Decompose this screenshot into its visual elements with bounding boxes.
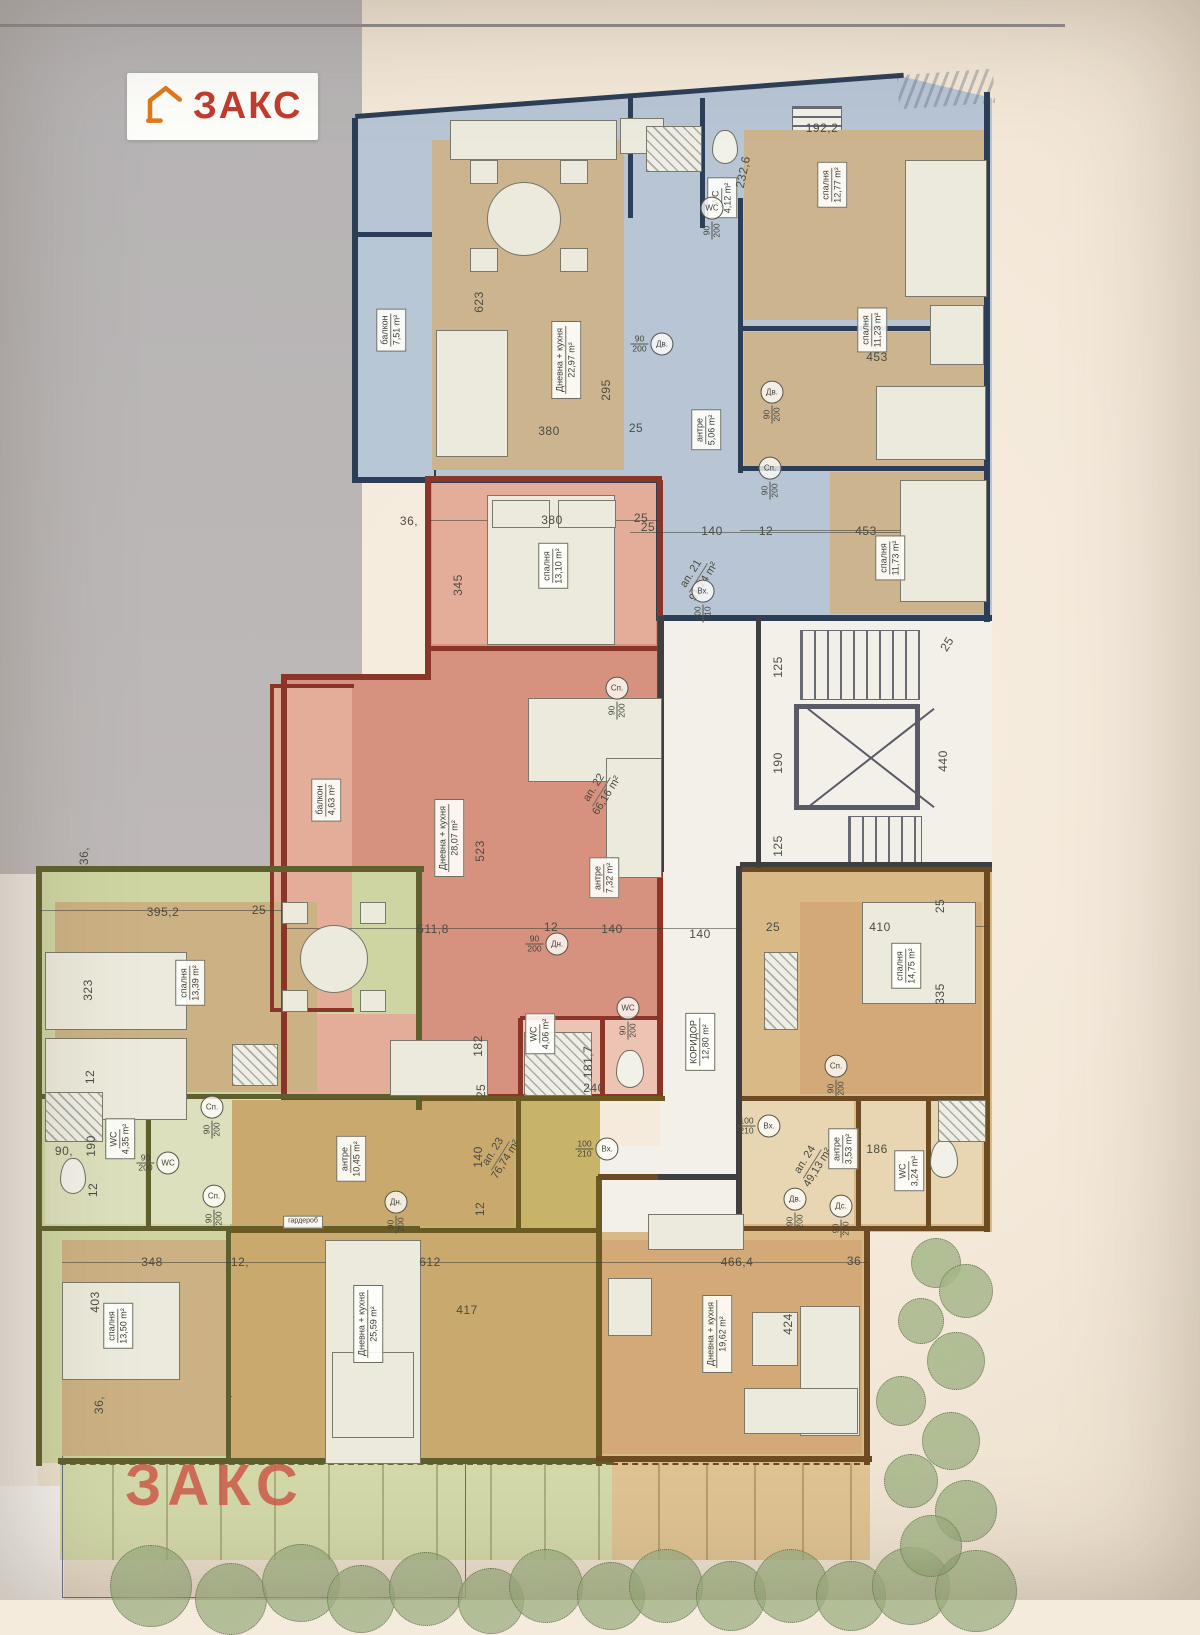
furniture-icon: [470, 160, 498, 184]
room-name: WC: [528, 1025, 540, 1044]
wall: [596, 1176, 602, 1466]
door-size: 100210: [575, 1139, 593, 1159]
room-area: 7,51 m²: [392, 315, 403, 346]
dimension-label: 12: [759, 524, 773, 538]
toilet-icon: [930, 1140, 958, 1178]
tree-icon: [195, 1563, 267, 1635]
room-label: Дневна + кухня22,97 m²: [551, 321, 581, 399]
dimension-label: 12: [473, 1202, 487, 1216]
table-icon: [300, 925, 368, 993]
table-icon: [487, 182, 561, 256]
dimension-label: 453: [866, 350, 888, 364]
room-area: 28,07 m²: [450, 820, 461, 856]
dimension-label: 623: [472, 291, 486, 313]
dimension-label: 25: [252, 903, 266, 917]
dimension-label: 25: [629, 421, 643, 435]
wall: [281, 674, 431, 680]
room-label: спалня11,73 m²: [875, 536, 905, 581]
door-size: 90200: [762, 405, 782, 423]
dimension-label: 12: [86, 1183, 100, 1197]
paper-edge-bottom-left: [0, 1486, 64, 1600]
dimension-label: 12,: [231, 1255, 249, 1269]
floor-plan-photo: ЗАКС ЗАКС балкон7,51 m²Дневна + кухня22,…: [0, 0, 1200, 1600]
room-name: спалня: [878, 541, 890, 574]
dimension-label: 295: [599, 379, 613, 401]
dimension-label: 410: [869, 920, 891, 934]
stairs-upper: [800, 630, 920, 700]
dimension-label: 511,8: [417, 922, 449, 936]
furniture-icon: [930, 305, 984, 365]
door-size: 90200: [525, 934, 543, 954]
room-area: 11,73 m²: [891, 541, 902, 576]
wall: [270, 684, 354, 688]
door-type-badge: Сп.: [203, 1184, 226, 1207]
door-type-badge: Вх.: [758, 1115, 781, 1138]
fixture-icon: [646, 126, 702, 172]
door-tag: 90200WC: [617, 996, 640, 1039]
furniture-icon: [360, 990, 386, 1012]
tree-icon: [389, 1552, 463, 1626]
room-name: гардероб: [286, 1218, 320, 1227]
table-edge-line: [0, 24, 1065, 27]
tree-icon: [939, 1264, 993, 1318]
room-name: спалня: [541, 549, 553, 582]
door-type-badge: Вх.: [692, 579, 715, 602]
furniture-icon: [876, 386, 986, 460]
room-label: WC3,24 m²: [894, 1151, 924, 1192]
wall: [36, 866, 424, 872]
furniture-icon: [560, 160, 588, 184]
dimension-label: 380: [541, 513, 563, 527]
door-tag: 100210Вх.: [575, 1138, 618, 1161]
room-label: спалня13,50 m²: [103, 1303, 133, 1349]
door-tag: 90200Дн.: [385, 1190, 408, 1233]
dimension-label: 12: [83, 1070, 97, 1084]
room-area: 3,53 m²: [844, 1134, 855, 1165]
dimension-label: 140: [601, 922, 623, 936]
door-size: 90200: [826, 1079, 846, 1097]
door-type-badge: Вх.: [596, 1138, 619, 1161]
apartment-21-balcony-zone: [356, 235, 436, 483]
dimension-label: 36,: [77, 847, 91, 865]
house-icon: [143, 83, 185, 130]
wall: [270, 684, 274, 1012]
room-label: балкон4,63 m²: [311, 778, 341, 821]
door-type-badge: Сп.: [201, 1095, 224, 1118]
room-name: спалня: [820, 168, 832, 201]
room-area: 13,39 m²: [191, 965, 202, 1001]
dimension-label: 192,2: [806, 121, 839, 135]
room-name: спалня: [860, 313, 872, 346]
room-name: WC: [108, 1130, 120, 1149]
room-area: 11,23 m²: [873, 313, 884, 348]
room-label: гардероб: [283, 1216, 323, 1229]
zaks-logo: ЗАКС: [127, 73, 318, 140]
furniture-icon: [436, 330, 508, 457]
dimension-label: 523: [473, 840, 487, 862]
door-type-badge: Дс.: [830, 1194, 853, 1217]
wall: [354, 232, 432, 235]
door-tag: 90200Сп.: [203, 1184, 226, 1227]
wall: [984, 866, 990, 1232]
fixture-icon: [764, 952, 798, 1030]
room-label: спалня13,10 m²: [538, 543, 568, 589]
dimension-label: 186: [866, 1142, 888, 1156]
dimension-label: 323: [81, 979, 95, 1001]
terrace-tan: [612, 1463, 870, 1560]
furniture-icon: [470, 248, 498, 272]
dimension-label: 25: [933, 899, 947, 913]
door-size: 90200: [630, 334, 648, 354]
tree-icon: [884, 1454, 938, 1508]
door-tag: 90200WC: [136, 1152, 179, 1175]
wall: [738, 198, 743, 473]
wall: [756, 616, 761, 868]
dimension-label: 190: [771, 752, 785, 774]
door-tag: 90200Сп.: [201, 1095, 224, 1138]
room-name: спалня: [106, 1309, 118, 1342]
room-label: спалня14,75 m²: [891, 943, 921, 989]
dimension-label: 140: [701, 524, 723, 538]
room-area: 4,06 m²: [541, 1019, 552, 1050]
wall: [628, 98, 633, 218]
dimension-label: 612: [419, 1255, 441, 1269]
tree-icon: [922, 1412, 980, 1470]
room-area: 4,63 m²: [327, 785, 338, 816]
wall: [596, 1456, 872, 1462]
door-tag: 90200Дс.: [830, 1194, 853, 1237]
dimension-label: 25: [766, 920, 780, 934]
room-name: КОРИДОР: [688, 1018, 700, 1066]
tree-icon: [927, 1332, 985, 1390]
wall: [658, 1174, 742, 1180]
room-label: WC4,35 m²: [105, 1119, 135, 1160]
room-area: 7,32 m²: [605, 863, 616, 894]
room-area: 4,35 m²: [121, 1124, 132, 1155]
room-name: спалня: [178, 966, 190, 999]
dimension-label: 25: [474, 1084, 488, 1098]
dimension-label: 90,: [55, 1144, 73, 1158]
door-size: 90200: [607, 701, 627, 719]
furniture-icon: [648, 1214, 744, 1250]
furniture-icon: [560, 248, 588, 272]
door-size: 90200: [785, 1212, 805, 1230]
room-label: спалня12,77 m²: [817, 162, 847, 208]
tree-icon: [900, 1515, 962, 1577]
room-area: 12,77 m²: [833, 167, 844, 203]
dimension-label: 403: [88, 1291, 102, 1313]
dimension-label: 190: [84, 1135, 98, 1157]
dimension-label: 380: [538, 424, 560, 438]
dimension-label: 395,2: [147, 905, 180, 919]
toilet-icon: [60, 1158, 86, 1194]
room-area: 13,10 m²: [554, 548, 565, 584]
room-area: 4,12 m²: [723, 183, 734, 214]
room-name: Дневна + кухня: [705, 1300, 717, 1368]
room-area: 14,75 m²: [907, 948, 918, 984]
tree-icon: [327, 1565, 395, 1633]
room-area: 12,80 m²: [701, 1024, 712, 1060]
door-tag: 90200Сп.: [606, 676, 629, 719]
door-size: 90200: [760, 481, 780, 499]
dimension-label: 335: [933, 983, 947, 1005]
stairs-lower: [848, 816, 922, 864]
room-area: 25,59 m²: [369, 1306, 380, 1342]
room-name: спалня: [894, 949, 906, 982]
wall: [281, 674, 287, 1100]
room-name: балкон: [314, 783, 326, 816]
furniture-icon: [900, 480, 987, 602]
tree-icon: [898, 1298, 944, 1344]
room-label: Дневна + кухня28,07 m²: [434, 799, 464, 877]
door-type-badge: Дв.: [761, 380, 784, 403]
dimension-label: 125: [771, 835, 785, 857]
wall: [738, 1226, 988, 1231]
dimension-label: 240: [583, 1081, 605, 1095]
dimension-label: 36,: [92, 1396, 106, 1414]
door-tag: 90200Дв.: [630, 333, 673, 356]
room-area: 22,97 m²: [567, 342, 578, 378]
door-size: 100210: [693, 604, 713, 622]
toilet-icon: [616, 1050, 644, 1088]
room-name: Дневна + кухня: [554, 326, 566, 394]
room-area: 3,24 m²: [910, 1156, 921, 1187]
room-area: 10,45 m²: [352, 1141, 363, 1177]
wall: [518, 1018, 523, 1098]
room-label: балкон7,51 m²: [376, 308, 406, 351]
door-type-badge: Дн.: [385, 1190, 408, 1213]
door-size: 90200: [136, 1153, 154, 1173]
wall: [420, 1096, 665, 1101]
dimension-label: 181,7: [581, 1046, 595, 1079]
room-name: антре: [339, 1145, 351, 1173]
dimension-label: 345: [451, 574, 465, 596]
furniture-icon: [282, 990, 308, 1012]
door-tag: 100210Вх.: [737, 1115, 780, 1138]
dimension-label: 348: [141, 1255, 163, 1269]
dimension-label: 140: [689, 927, 711, 941]
room-label: КОРИДОР12,80 m²: [685, 1013, 715, 1071]
door-tag: 90200Сп.: [759, 456, 782, 499]
door-tag: 100210Вх.: [692, 579, 715, 622]
dimension-label: 125: [771, 656, 785, 678]
room-name: Дневна + кухня: [437, 804, 449, 872]
door-type-badge: Сп.: [759, 456, 782, 479]
dimension-label: 140: [471, 1146, 485, 1168]
tree-icon: [509, 1549, 583, 1623]
room-label: антре10,45 m²: [336, 1136, 366, 1182]
door-size: 90200: [202, 1120, 222, 1138]
door-size: 90200: [702, 221, 722, 239]
wall: [352, 118, 358, 483]
dimension-label: 417: [456, 1303, 478, 1317]
wall: [230, 1228, 600, 1233]
door-tag: 90200Дв.: [761, 380, 784, 423]
door-size: 100210: [737, 1116, 755, 1136]
wall: [36, 866, 42, 1466]
furniture-icon: [905, 160, 987, 297]
furniture-icon: [744, 1388, 858, 1434]
furniture-icon: [332, 1352, 414, 1438]
dimension-label: 466,4: [721, 1255, 754, 1269]
door-tag: 90200WC: [701, 196, 724, 239]
wall: [740, 862, 992, 867]
room-label: Дневна + кухня25,59 m²: [353, 1285, 383, 1363]
furniture-icon: [45, 952, 187, 1030]
room-label: антре7,32 m²: [589, 858, 619, 899]
room-name: балкон: [379, 313, 391, 346]
door-size: 90200: [831, 1219, 851, 1237]
room-name: Дневна + кухня: [356, 1290, 368, 1358]
fixture-icon: [232, 1044, 278, 1086]
room-name: WC: [897, 1162, 909, 1181]
dimension-label: 182: [471, 1035, 485, 1057]
room-area: 5,06 m²: [707, 415, 718, 446]
dimension-label: 36,: [400, 514, 418, 528]
door-type-badge: Сп.: [825, 1054, 848, 1077]
room-name: антре: [592, 864, 604, 892]
tree-icon: [876, 1376, 926, 1426]
logo-text: ЗАКС: [193, 85, 302, 128]
door-type-badge: Сп.: [606, 676, 629, 699]
furniture-icon: [450, 120, 617, 160]
dimension-label: 424: [781, 1313, 795, 1335]
dimension-label: 36: [847, 1254, 861, 1268]
dimension-label: 453: [855, 524, 877, 538]
door-type-badge: WC: [157, 1152, 180, 1175]
door-size: 90200: [618, 1021, 638, 1039]
door-type-badge: Дв.: [651, 333, 674, 356]
dimension-label: 25: [634, 511, 648, 525]
door-tag: 90200Сп.: [825, 1054, 848, 1097]
door-tag: 90200Дн.: [525, 933, 568, 956]
door-type-badge: Дн.: [546, 933, 569, 956]
door-size: 90200: [386, 1215, 406, 1233]
tree-icon: [110, 1545, 192, 1627]
furniture-icon: [608, 1278, 652, 1336]
fixture-icon: [938, 1100, 986, 1142]
room-area: 13,50 m²: [119, 1308, 130, 1344]
wall: [430, 646, 660, 651]
furniture-icon: [360, 902, 386, 924]
room-label: спалня11,23 m²: [857, 308, 887, 353]
room-area: 19,62 m²: [718, 1316, 729, 1352]
furniture-icon: [558, 500, 616, 528]
dimension-label: 440: [936, 750, 950, 772]
door-type-badge: WC: [617, 996, 640, 1019]
tree-icon: [629, 1549, 703, 1623]
room-label: антре5,06 m²: [691, 410, 721, 451]
door-size: 90200: [204, 1209, 224, 1227]
wall: [516, 1096, 521, 1232]
door-type-badge: WC: [701, 196, 724, 219]
door-type-badge: Дв.: [784, 1187, 807, 1210]
elevator-shaft: [794, 704, 920, 810]
room-label: WC4,06 m²: [525, 1014, 555, 1055]
toilet-icon: [712, 130, 738, 164]
roof-hatch: [897, 69, 995, 110]
room-name: антре: [694, 416, 706, 444]
door-tag: 90200Дв.: [784, 1187, 807, 1230]
dimension-line: [286, 928, 742, 929]
wall: [428, 476, 662, 482]
room-label: Дневна + кухня19,62 m²: [702, 1295, 732, 1373]
room-label: спалня13,39 m²: [175, 960, 205, 1006]
furniture-icon: [282, 902, 308, 924]
